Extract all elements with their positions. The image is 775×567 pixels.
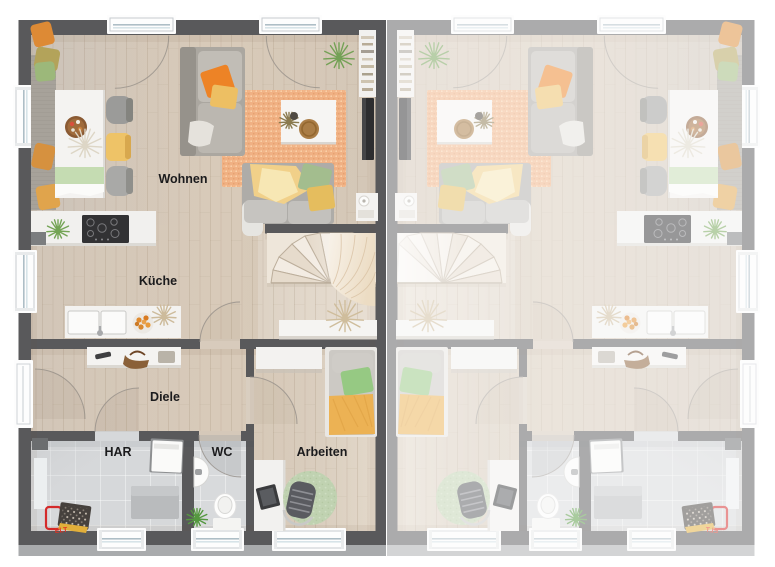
svg-text:WC: WC <box>212 445 233 459</box>
svg-text:ELT: ELT <box>54 527 68 535</box>
svg-text:Arbeiten: Arbeiten <box>297 445 348 459</box>
svg-text:ELT: ELT <box>704 527 718 535</box>
svg-text:Wohnen: Wohnen <box>158 172 207 186</box>
svg-text:HAR: HAR <box>104 445 131 459</box>
svg-text:Diele: Diele <box>150 390 180 404</box>
svg-text:Küche: Küche <box>139 274 177 288</box>
